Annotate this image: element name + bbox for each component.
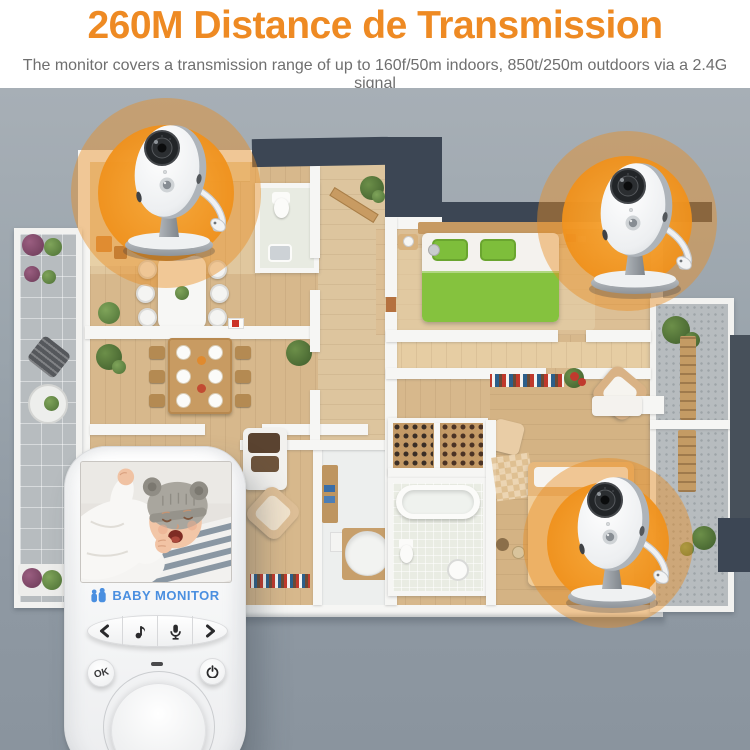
next-button [193, 616, 227, 646]
plate [176, 345, 191, 360]
chair [235, 370, 251, 383]
baby-monitor-logo-icon [90, 588, 107, 603]
bookshelf [488, 372, 566, 389]
green-plant [112, 360, 126, 374]
lamp [403, 236, 414, 247]
chair [149, 346, 165, 359]
chair [208, 308, 227, 327]
chair [235, 346, 251, 359]
plate [176, 393, 191, 408]
ok-label: OK [92, 666, 109, 680]
chair [149, 370, 165, 383]
bed-master [422, 233, 559, 322]
music-button [123, 616, 158, 646]
brand-row: BABY MONITOR [65, 588, 245, 603]
roof-slab [252, 137, 388, 167]
sofa-cushion [251, 456, 279, 472]
bookshelf [248, 572, 312, 590]
purple-plant [22, 568, 42, 588]
purple-plant [22, 234, 44, 256]
sofa [243, 428, 287, 490]
green-pillow [480, 239, 516, 261]
balcony-divider-wall [650, 420, 734, 429]
chair [149, 394, 165, 407]
sofa-cushion [248, 433, 280, 453]
monitor-screen [80, 461, 232, 583]
plate [176, 369, 191, 384]
armchair-cushion [253, 493, 293, 533]
white-sofa [592, 396, 642, 416]
green-duvet [422, 271, 559, 322]
product-infographic: 260M Distance de Transmission The monito… [0, 0, 750, 750]
red-flowers [578, 378, 586, 386]
green-plant [98, 302, 120, 324]
green-plant [42, 270, 56, 284]
green-plant [372, 190, 385, 203]
closet-divider [434, 423, 440, 471]
power-button [199, 658, 226, 685]
baby-monitor-handset: BABY MONITOR [64, 446, 246, 750]
bathtub [396, 485, 480, 519]
storage-shelf [322, 465, 338, 523]
lamp [428, 244, 440, 256]
roof-corner [718, 518, 750, 572]
talk-button [158, 616, 193, 646]
baby-video-feed [81, 462, 232, 583]
dish [197, 384, 206, 393]
red-box [232, 320, 239, 327]
wooden-bench [680, 336, 696, 420]
green-plant [692, 526, 716, 550]
roof-slab [385, 137, 442, 217]
interior-wall [386, 330, 558, 342]
corridor-floor [386, 342, 651, 368]
plate [208, 345, 223, 360]
interior-wall [586, 330, 651, 342]
interior-wall [486, 420, 496, 605]
baby-camera-top-left [105, 115, 245, 265]
interior-wall [310, 290, 320, 352]
green-plant [286, 340, 312, 366]
indicator-mark [151, 662, 163, 666]
brand-name: BABY MONITOR [112, 588, 219, 603]
towel [324, 496, 335, 503]
sink [268, 244, 292, 262]
towel [324, 485, 335, 492]
green-plant [44, 238, 62, 256]
interior-wall [313, 447, 322, 605]
chevron-right-icon [201, 622, 219, 640]
baby-camera-top-right [571, 153, 711, 303]
power-icon [206, 665, 219, 678]
nav-button-cluster [87, 615, 228, 647]
round-tub [345, 531, 390, 576]
plate [208, 393, 223, 408]
room-main-bathroom [388, 478, 488, 596]
header: 260M Distance de Transmission The monito… [0, 0, 750, 88]
table-plant [44, 396, 59, 411]
chair [235, 394, 251, 407]
microphone-icon [166, 622, 184, 640]
chevron-left-icon [96, 622, 114, 640]
page-title: 260M Distance de Transmission [0, 4, 750, 48]
interior-wall [388, 468, 488, 478]
toilet [400, 545, 413, 563]
previous-button [88, 616, 123, 646]
chair [138, 308, 157, 327]
toilet [274, 198, 289, 218]
chair [210, 284, 229, 303]
dish [197, 356, 206, 365]
interior-wall [385, 217, 397, 297]
interior-wall [90, 424, 205, 435]
ok-button: OK [87, 659, 115, 687]
shoes [393, 423, 433, 471]
plate [208, 369, 223, 384]
baby-camera-bottom-right [548, 467, 688, 617]
door-threshold [386, 297, 396, 312]
round-sink [447, 559, 469, 581]
stool [496, 538, 509, 551]
purple-plant [24, 266, 40, 282]
table-plant [175, 286, 189, 300]
music-note-icon [131, 622, 149, 640]
shoes [441, 423, 483, 471]
bathtub-basin [402, 490, 474, 514]
green-plant [42, 570, 62, 590]
interior-wall [310, 166, 320, 258]
